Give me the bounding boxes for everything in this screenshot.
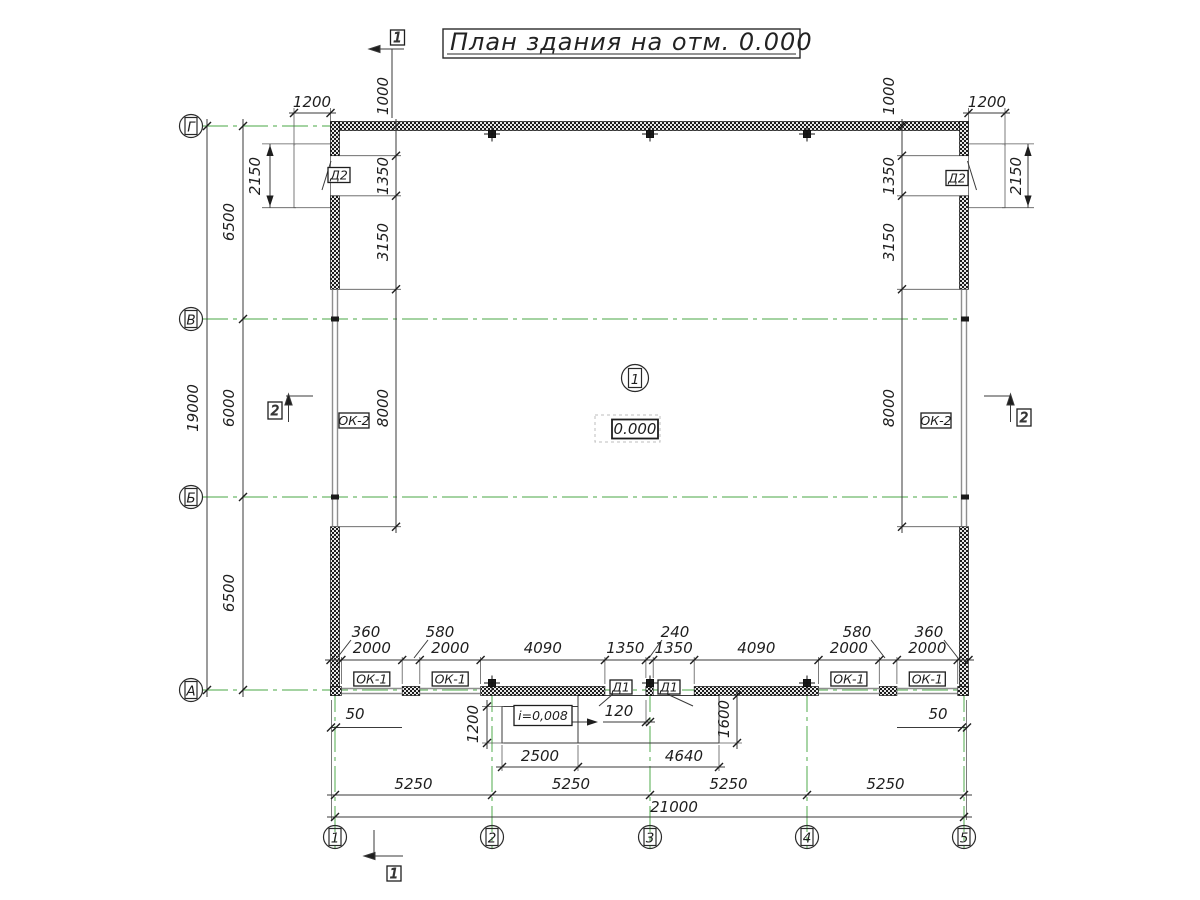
dimension-texts: 19000 6500 6000 6500 2150 2150 1200 1200… [184,77,1025,816]
elevation-value: 0.000 [614,420,657,438]
dim-wall-1350-left: 1350 [374,157,392,195]
dim-50-right: 50 [928,705,947,723]
dim-wall-3150-left: 3150 [374,223,392,261]
dim-ramp-1600: 1600 [715,700,733,738]
window-ok1-label-1: ОК-1 [356,672,387,687]
section-2-right-label: 2 [1020,411,1028,426]
axis-bubble-3: 3 [639,826,662,849]
axis-bubble-4: 4 [796,826,819,849]
dim-120: 120 [605,702,634,720]
window-ok1-label-3: ОК-1 [833,672,864,687]
slope-label: i=0,008 [518,708,568,723]
dim-ramp-1200: 1200 [464,705,482,743]
dim-leader-240: 240 [661,623,690,641]
axis-label-3: 3 [646,831,655,847]
dim-leader-360-right: 360 [915,623,944,641]
axis-label-1: 1 [331,831,340,847]
dim-21000: 21000 [650,798,698,816]
section-1-top-label: 1 [393,31,401,46]
axis-bubble-b: Б [180,486,203,509]
dim-porch-height-right: 2150 [1007,157,1025,195]
window-ok2-right-label: ОК-2 [920,413,951,428]
drawing-title: План здания на отм. 0.000 [443,28,813,58]
dim-5250-3: 5250 [866,775,904,793]
dim-total-height: 19000 [184,384,202,432]
window-ok1-label-2: ОК-1 [435,672,466,687]
axis-bubble-1: 1 [324,826,347,849]
dim-wall-8000-right: 8000 [880,389,898,427]
door-d2-right-label: Д2 [947,171,966,186]
axis-wall-ticks [331,317,969,500]
axis-bubble-a: А [180,679,203,702]
axis-bubble-g: Г [180,115,203,138]
axis-label-b: Б [186,491,195,507]
dim-wall-1000-right: 1000 [880,77,898,115]
porch-right [969,144,1006,208]
dim-chain-4: 1350 [655,639,693,657]
door-d2-left-label: Д2 [329,168,348,183]
title-text: План здания на отм. 0.000 [450,28,813,56]
dim-porch-width-right: 1200 [968,93,1006,111]
dim-leader-360-left: 360 [352,623,381,641]
axis-bubble-2: 2 [481,826,504,849]
dim-chain-2: 4090 [524,639,562,657]
dim-50-left: 50 [345,705,364,723]
porch-left [294,144,331,208]
dim-chain-7: 2000 [908,639,946,657]
section-2-left: 2 [268,394,313,422]
dim-4640: 4640 [665,747,703,765]
dim-porch-width-left: 1200 [293,93,331,111]
axis-grid-lines [202,126,964,848]
axis-label-2: 2 [488,831,497,847]
dim-chain-1: 2000 [431,639,469,657]
window-ok1-label-4: ОК-1 [912,672,943,687]
axis-label-a: А [185,684,195,700]
dim-5250-2: 5250 [709,775,747,793]
axis-bubble-v: В [180,308,203,331]
axis-label-g: Г [187,120,196,136]
axis-bubble-5: 5 [953,826,976,849]
extension-lines [262,108,1034,820]
section-2-left-label: 2 [271,404,279,419]
room-annotations: 1 0.000 [595,365,660,443]
axis-label-v: В [186,313,195,329]
section-2-right: 2 [984,394,1031,426]
dim-chain-6: 2000 [830,639,868,657]
door-d1-left-label: Д1 [611,680,630,695]
dim-leader-580-left: 580 [426,623,455,641]
dim-porch-height-left: 2150 [246,157,264,195]
dim-2500: 2500 [521,747,559,765]
section-1-bottom-label: 1 [390,867,398,882]
drawing-canvas: 19000 6500 6000 6500 2150 2150 1200 1200… [0,0,1200,900]
dim-chain-3: 1350 [606,639,644,657]
room-number: 1 [631,372,640,388]
dim-span-v-b: 6000 [220,389,238,427]
dim-wall-8000-left: 8000 [374,389,392,427]
dim-5250-0: 5250 [394,775,432,793]
dim-wall-1350-right: 1350 [880,157,898,195]
door-d1-right-label: Д1 [659,680,678,695]
dim-leader-580-right: 580 [843,623,872,641]
floor-plan-svg: 19000 6500 6000 6500 2150 2150 1200 1200… [0,0,1200,900]
column-symbols [484,127,815,691]
dim-span-b-a: 6500 [220,574,238,612]
dim-chain-0: 2000 [353,639,391,657]
section-1-bottom: 1 [364,830,403,882]
dim-wall-3150-right: 3150 [880,223,898,261]
axis-label-4: 4 [803,831,812,847]
dim-5250-1: 5250 [552,775,590,793]
walls [331,122,969,696]
axis-label-5: 5 [960,831,969,847]
dim-wall-1000-left: 1000 [374,77,392,115]
window-ok2-left-label: ОК-2 [338,413,369,428]
dim-span-g-v: 6500 [220,203,238,241]
dim-chain-5: 4090 [737,639,775,657]
